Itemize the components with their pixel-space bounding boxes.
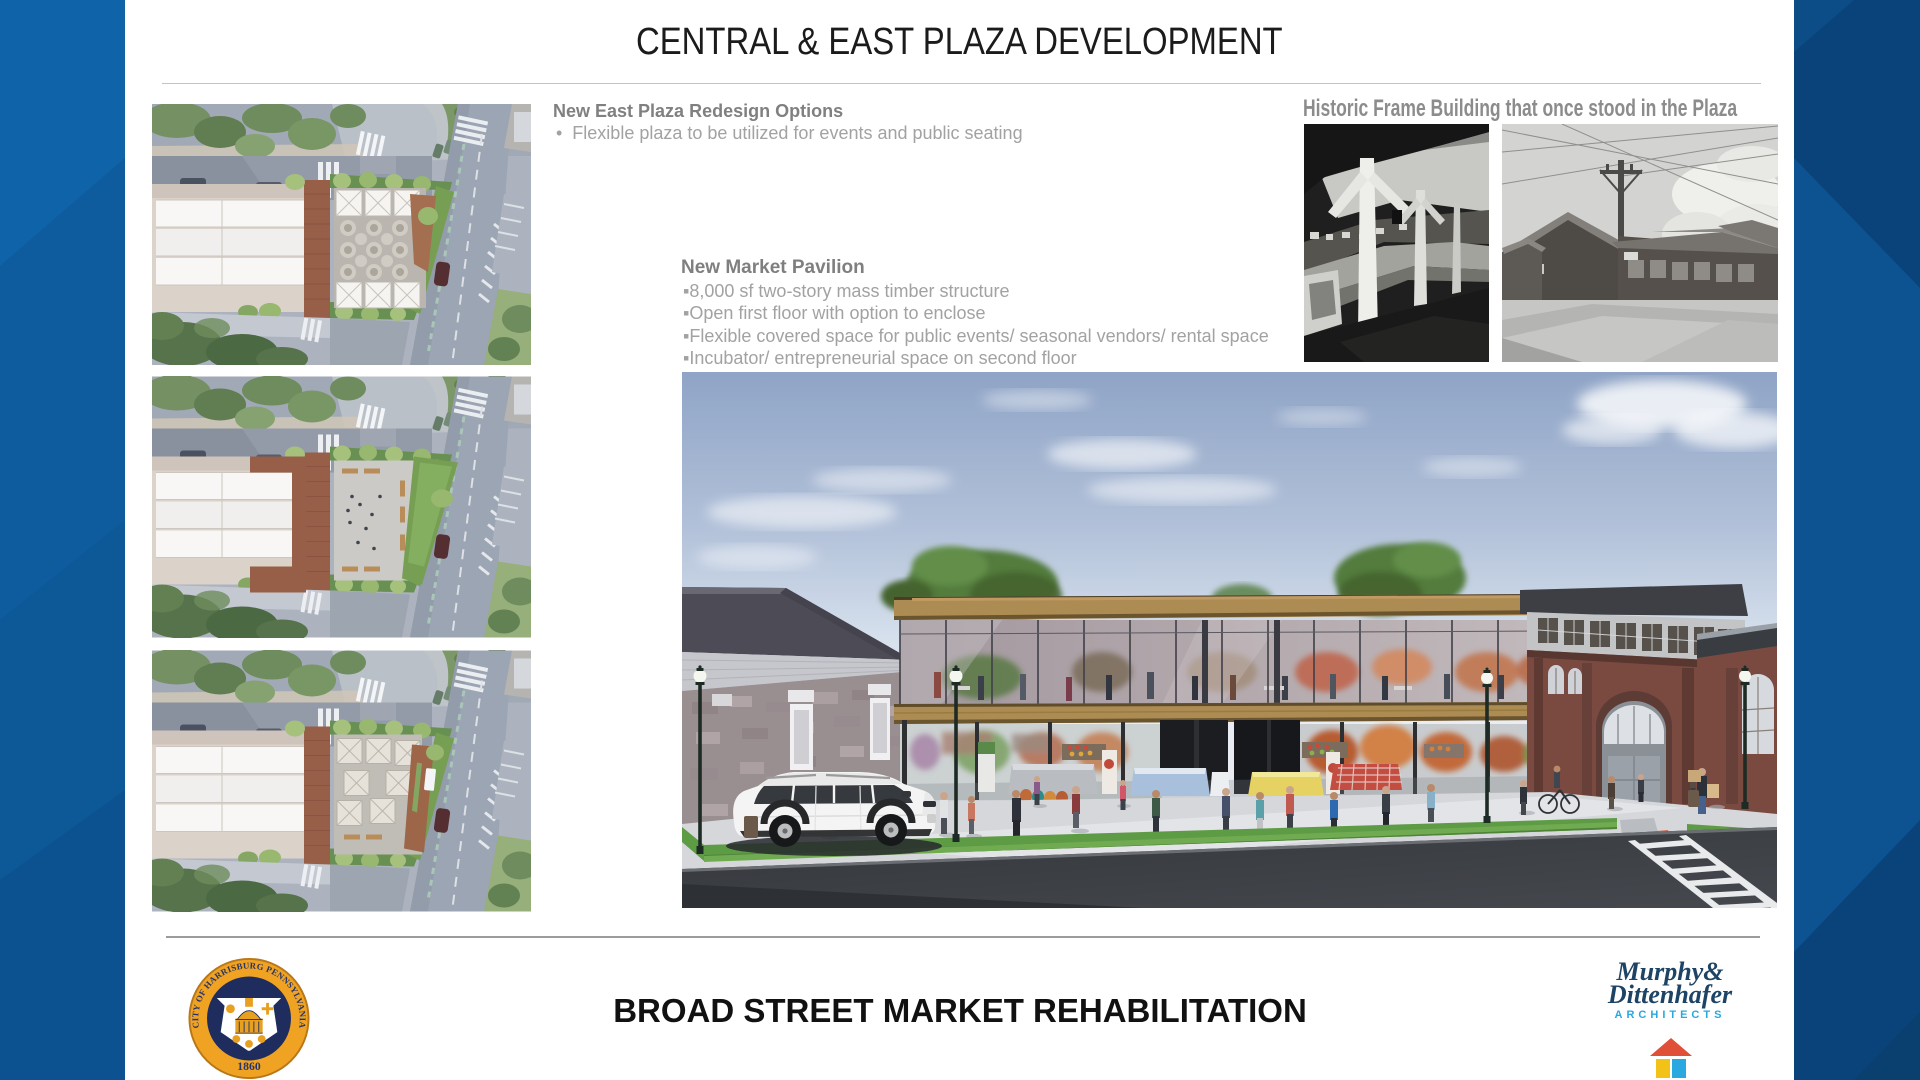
svg-text:1860: 1860 <box>237 1060 261 1073</box>
